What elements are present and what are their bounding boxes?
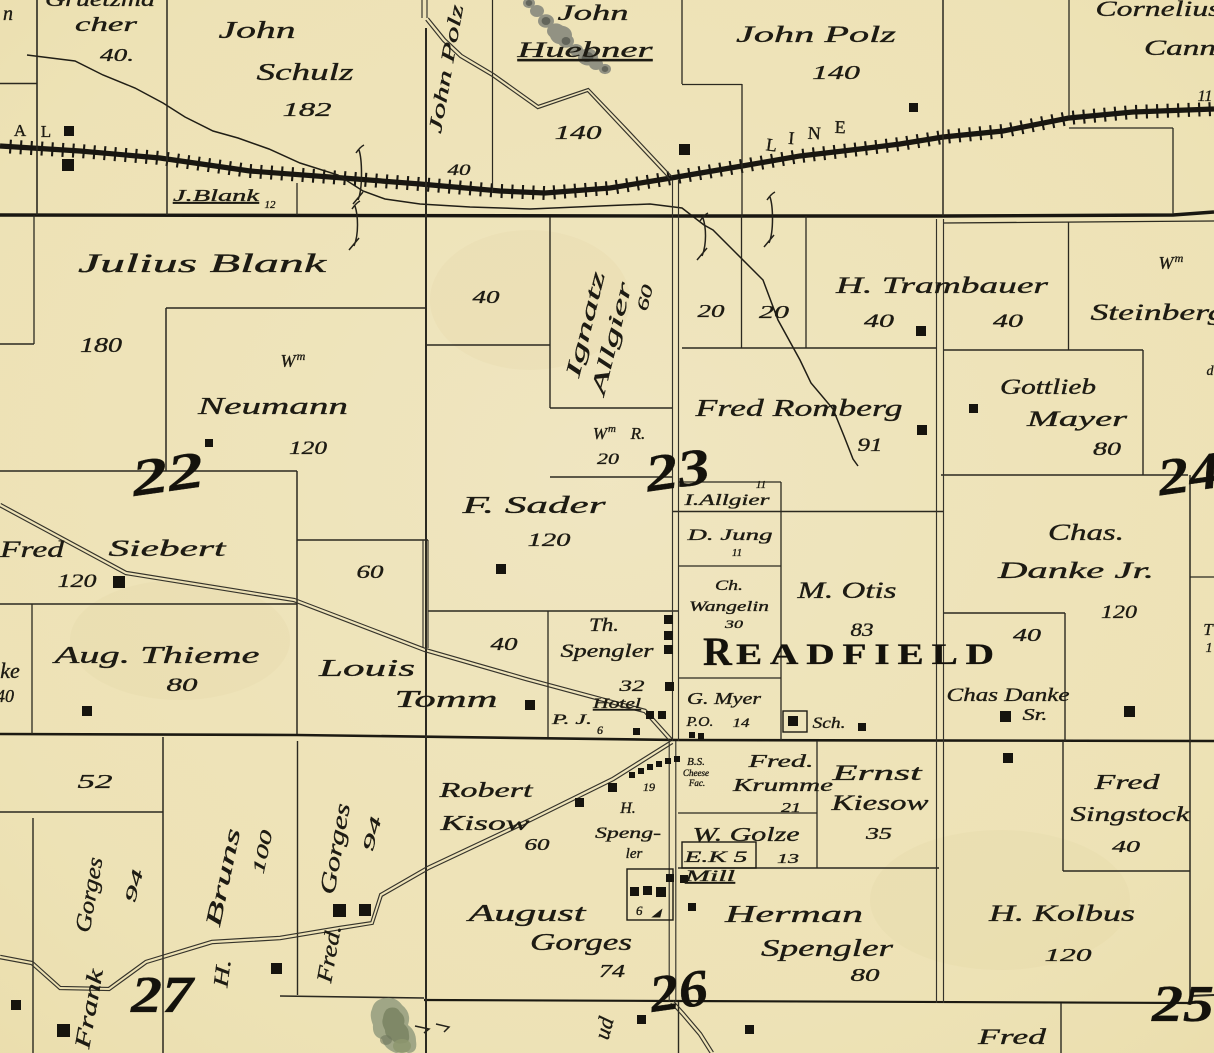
svg-text:40: 40 [448,162,471,179]
svg-text:Spengler: Spengler [561,641,655,662]
svg-text:20: 20 [759,302,789,322]
svg-text:J.Blank: J.Blank [173,186,260,205]
svg-text:25: 25 [1151,976,1214,1033]
svg-text:35: 35 [864,824,892,843]
svg-text:cher: cher [75,14,137,36]
svg-text:W. Golze: W. Golze [693,824,800,846]
svg-text:H. Trambauer: H. Trambauer [834,273,1049,298]
svg-text:A: A [14,121,27,140]
svg-text:182: 182 [283,99,332,121]
svg-text:Th.: Th. [589,615,619,636]
svg-text:ke: ke [0,658,20,683]
svg-text:120: 120 [58,571,98,592]
svg-text:E: E [834,117,846,137]
svg-text:Kiesow: Kiesow [830,790,929,815]
svg-text:Fred Romberg: Fred Romberg [694,396,902,422]
svg-text:120: 120 [1101,602,1138,623]
svg-text:Singstock: Singstock [1071,802,1191,826]
svg-text:R.: R. [630,424,646,443]
svg-text:180: 180 [80,333,123,357]
svg-text:August: August [465,901,588,927]
svg-text:ler: ler [626,846,643,862]
svg-text:N: N [807,123,821,144]
svg-text:Mill: Mill [683,868,736,885]
svg-text:Steinberg: Steinberg [1091,300,1214,325]
svg-text:14: 14 [733,715,751,730]
svg-text:Gruetzma: Gruetzma [45,0,155,11]
svg-text:m: m [297,349,306,363]
svg-text:John Polz: John Polz [736,22,896,47]
svg-text:E A D F I E L D: E A D F I E L D [736,638,994,671]
svg-text:Danke Jr.: Danke Jr. [996,558,1154,583]
svg-text:I.Allgier: I.Allgier [683,492,771,509]
svg-text:H.: H. [208,958,235,990]
svg-text:n: n [3,3,13,25]
svg-text:120: 120 [289,438,328,459]
svg-text:11: 11 [1198,88,1213,105]
svg-text:Spengler: Spengler [761,936,894,962]
svg-text:Cann: Cann [1144,35,1214,60]
svg-text:d: d [1207,364,1214,379]
svg-text:13: 13 [777,852,799,867]
svg-text:Sr.: Sr. [1023,705,1048,724]
svg-text:27: 27 [130,967,196,1024]
svg-text:Ch.: Ch. [715,578,743,594]
svg-text:40: 40 [1013,625,1041,645]
svg-text:20: 20 [597,451,619,468]
svg-text:140: 140 [555,122,602,144]
svg-text:Sch.: Sch. [813,715,846,732]
svg-text:L: L [41,122,51,141]
svg-text:74: 74 [599,961,625,981]
svg-text:P.O.: P.O. [685,715,713,730]
svg-text:Fred: Fred [1093,770,1160,794]
svg-text:Herman: Herman [723,902,863,928]
svg-text:40.: 40. [100,45,134,65]
svg-text:Tomm: Tomm [395,687,498,713]
svg-text:P. J.: P. J. [550,712,592,728]
svg-text:B.S.: B.S. [687,756,705,768]
svg-text:Cornelius: Cornelius [1096,0,1214,21]
svg-text:Speng-: Speng- [595,825,661,842]
svg-text:1: 1 [1206,641,1213,656]
svg-text:Chas Danke: Chas Danke [947,685,1070,706]
svg-text:60: 60 [525,835,551,854]
svg-text:Krumme: Krumme [731,775,833,795]
svg-text:John: John [219,18,296,44]
svg-text:Gorges: Gorges [530,930,632,956]
svg-text:20: 20 [698,301,725,321]
svg-text:40: 40 [473,287,500,307]
svg-text:Cheese: Cheese [683,768,709,778]
svg-text:52: 52 [78,771,113,793]
svg-text:Neumann: Neumann [196,394,348,420]
svg-text:Louis: Louis [317,656,415,682]
svg-text:Hotel: Hotel [592,696,641,712]
svg-text:6: 6 [597,723,603,737]
svg-text:140: 140 [812,62,860,84]
svg-text:Huebner: Huebner [516,37,654,62]
svg-text:Chas.: Chas. [1048,520,1124,545]
svg-text:40: 40 [1112,837,1141,856]
svg-text:Schulz: Schulz [257,60,355,86]
svg-text:John: John [558,0,629,25]
svg-text:26: 26 [645,959,711,1024]
svg-text:21: 21 [781,801,801,816]
svg-text:24: 24 [1153,442,1214,507]
svg-text:6: 6 [636,903,643,918]
svg-text:120: 120 [1045,945,1092,965]
svg-text:m: m [608,423,616,435]
svg-text:W: W [1159,253,1176,273]
svg-text:32: 32 [618,678,645,695]
svg-text:Ernst: Ernst [831,760,923,785]
svg-text:91: 91 [858,435,883,456]
svg-text:R: R [703,629,733,674]
svg-text:Fred.: Fred. [747,751,814,771]
svg-text:40: 40 [993,311,1024,332]
svg-text:Wangelin: Wangelin [689,599,769,615]
svg-text:19: 19 [643,780,655,794]
svg-text:Siebert: Siebert [109,536,227,561]
svg-text:M. Otis: M. Otis [796,578,897,603]
svg-text:F. Sader: F. Sader [461,493,607,519]
svg-text:Mayer: Mayer [1025,406,1127,431]
svg-text:40: 40 [864,311,895,332]
svg-text:Kisow: Kisow [439,811,530,835]
svg-text:T: T [1203,620,1214,639]
svg-text:Aug. Thieme: Aug. Thieme [51,643,260,669]
svg-text:12: 12 [265,199,277,211]
svg-text:Fred: Fred [0,537,65,562]
svg-text:40: 40 [0,686,14,706]
svg-text:W: W [593,424,609,443]
svg-text:Robert: Robert [438,778,535,802]
svg-text:22: 22 [127,441,208,508]
svg-text:Gottlieb: Gottlieb [1000,374,1096,399]
svg-text:120: 120 [528,530,572,551]
svg-text:m: m [1175,251,1184,265]
svg-text:Fred: Fred [976,1024,1047,1049]
svg-text:E.K 5: E.K 5 [683,849,748,866]
svg-text:60: 60 [357,562,385,583]
svg-text:80: 80 [851,965,880,985]
svg-text:H. Kolbus: H. Kolbus [987,901,1135,926]
svg-text:G. Myer: G. Myer [687,689,761,708]
svg-text:W: W [281,351,298,371]
svg-text:11: 11 [732,547,742,559]
svg-text:80: 80 [1093,439,1122,460]
svg-text:11: 11 [756,479,766,491]
svg-text:Julius Blank: Julius Blank [78,249,327,278]
svg-text:D. Jung: D. Jung [686,527,773,544]
svg-text:Fac.: Fac. [688,778,705,788]
svg-text:40: 40 [491,634,518,654]
svg-text:H.: H. [619,800,636,817]
svg-text:80: 80 [167,675,199,696]
